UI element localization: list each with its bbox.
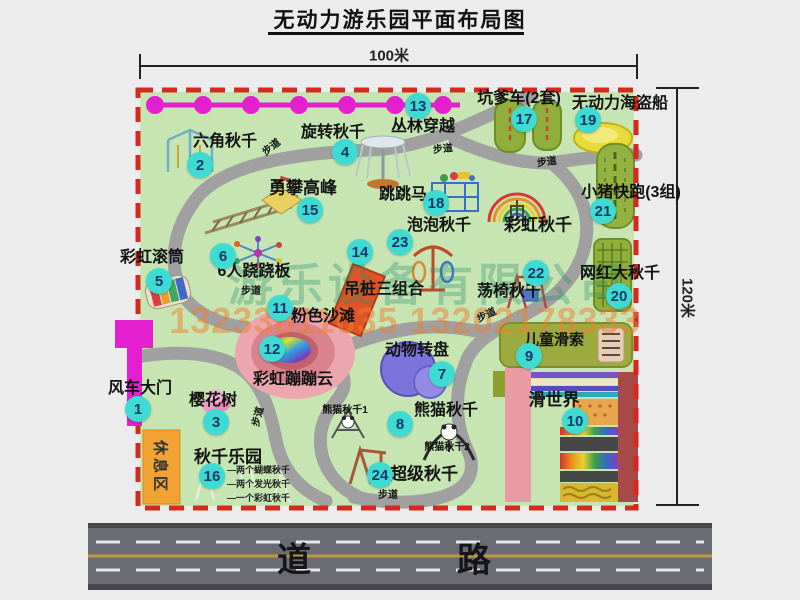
path-label: 步道 — [241, 287, 261, 297]
attraction-label: 荡椅秋千 — [477, 284, 541, 300]
attraction-marker-10: 10 — [562, 408, 588, 434]
attraction-label: 泡泡秋千 — [407, 218, 471, 234]
sub-label: 熊猫秋千1 — [322, 406, 368, 416]
attraction-marker-18: 18 — [423, 190, 449, 216]
attraction-marker-14: 14 — [347, 239, 373, 265]
attraction-marker-22: 22 — [523, 260, 549, 286]
path-label: 步道 — [378, 491, 398, 501]
attraction-label: 超级秋千 — [390, 466, 458, 483]
rest-area-label: 休息区 — [151, 440, 172, 494]
attraction-marker-12: 12 — [259, 336, 285, 362]
attraction-label: 樱花树 — [189, 393, 237, 409]
attraction-label: 彩虹蹦蹦云 — [253, 372, 333, 388]
swing-park-note: —两个蝴蝶秋千 — [227, 466, 290, 475]
attraction-marker-7: 7 — [429, 361, 455, 387]
attraction-label: 滑世界 — [529, 392, 580, 409]
attraction-marker-6: 6 — [210, 243, 236, 269]
attraction-label: 粉色沙滩 — [291, 309, 355, 325]
attraction-marker-11: 11 — [267, 295, 293, 321]
attraction-marker-4: 4 — [332, 139, 358, 165]
height-dimension-label: 120米 — [678, 278, 699, 318]
width-dimension-label: 100米 — [369, 45, 409, 66]
attraction-marker-23: 23 — [387, 229, 413, 255]
path-label: 步道 — [433, 144, 454, 156]
swing-park-note: —一个彩虹秋千 — [227, 494, 290, 503]
attraction-label: 熊猫秋千 — [414, 403, 478, 419]
playground-map-poster: 游乐设备有限公司 13233811635 13202178333 无动力游乐园平… — [0, 0, 800, 600]
swing-park-note: —两个发光秋千 — [227, 480, 290, 489]
attraction-label: 吊桩三组合 — [344, 282, 424, 298]
attraction-marker-16: 16 — [199, 463, 225, 489]
attraction-marker-2: 2 — [187, 152, 213, 178]
attraction-marker-17: 17 — [511, 106, 537, 132]
attraction-marker-13: 13 — [405, 93, 431, 119]
attraction-marker-15: 15 — [297, 197, 323, 223]
attraction-marker-20: 20 — [606, 283, 632, 309]
slide-world-shape — [493, 368, 638, 502]
attraction-marker-1: 1 — [125, 396, 151, 422]
attraction-marker-8: 8 — [387, 411, 413, 437]
attraction-label: 秋千乐园 — [194, 449, 262, 466]
attraction-label: 跳跳马 — [379, 187, 427, 203]
title-underline — [268, 32, 524, 35]
attraction-label: 旋转秋千 — [301, 125, 365, 141]
attraction-marker-3: 3 — [203, 409, 229, 435]
attraction-label: 彩虹秋千 — [504, 217, 572, 234]
attraction-marker-9: 9 — [516, 343, 542, 369]
attraction-label: 丛林穿越 — [391, 119, 455, 135]
attraction-label: 动物转盘 — [385, 343, 449, 359]
attraction-label: 风车大门 — [108, 381, 172, 397]
attraction-marker-21: 21 — [590, 198, 616, 224]
attraction-label: 网红大秋千 — [580, 266, 660, 282]
attraction-marker-24: 24 — [367, 462, 393, 488]
sub-label: 熊猫秋千2 — [424, 443, 470, 453]
attraction-marker-19: 19 — [575, 107, 601, 133]
attraction-label: 六角秋千 — [193, 134, 257, 150]
road-label: 道 路 — [277, 533, 547, 582]
attraction-label: 彩虹滚筒 — [120, 250, 184, 266]
attraction-label: 勇攀高峰 — [269, 180, 337, 197]
page-title: 无动力游乐园平面布局图 — [274, 4, 527, 34]
attraction-label: 坑爹车(2套) — [477, 91, 561, 107]
attraction-marker-5: 5 — [146, 268, 172, 294]
